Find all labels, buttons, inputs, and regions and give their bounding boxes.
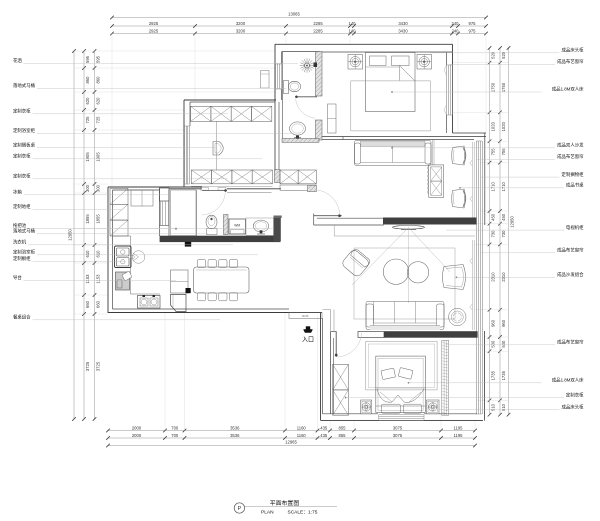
svg-text:520: 520 [491,51,496,59]
svg-text:餐桌组合: 餐桌组合 [13,314,31,321]
svg-text:1160: 1160 [297,433,307,438]
svg-text:240: 240 [452,28,460,33]
svg-text:落地式马桶: 落地式马桶 [13,82,36,89]
svg-text:595: 595 [85,55,90,63]
svg-text:定制浴室柜: 定制浴室柜 [13,127,36,134]
svg-text:435: 435 [320,433,328,438]
svg-text:2925: 2925 [149,21,159,26]
svg-text:140: 140 [349,28,357,33]
svg-text:975: 975 [469,21,477,26]
svg-text:1855: 1855 [85,214,90,224]
svg-text:2285: 2285 [313,28,323,33]
svg-text:3075: 3075 [393,425,403,430]
svg-text:成品布艺窗帘: 成品布艺窗帘 [557,339,584,346]
svg-text:660: 660 [96,300,101,308]
svg-text:1735: 1735 [501,370,506,380]
svg-text:成品沙发组合: 成品沙发组合 [557,271,584,278]
svg-text:3430: 3430 [398,28,408,33]
svg-text:620: 620 [85,97,90,105]
svg-text:JD-05: JD-05 [302,314,309,318]
svg-text:定制衣柜: 定制衣柜 [13,153,31,160]
svg-text:3200: 3200 [236,28,246,33]
svg-text:P: P [238,506,242,512]
svg-text:755: 755 [491,148,496,156]
svg-text:725: 725 [85,116,90,124]
svg-text:成品1.8M双人床: 成品1.8M双人床 [552,377,584,384]
svg-text:WM: WM [234,224,240,228]
svg-text:1855: 1855 [96,214,101,224]
svg-text:725: 725 [96,116,101,124]
svg-text:1710: 1710 [501,181,506,191]
svg-text:500: 500 [501,340,506,348]
svg-text:成品布艺窗帘: 成品布艺窗帘 [557,58,584,65]
svg-text:电视机柜: 电视机柜 [566,224,584,231]
svg-text:610: 610 [96,250,101,258]
svg-text:500: 500 [491,340,496,348]
svg-text:140: 140 [349,21,357,26]
svg-text:300: 300 [96,184,101,192]
svg-text:860: 860 [85,76,90,84]
svg-text:2310: 2310 [501,272,506,282]
svg-text:1195: 1195 [453,433,463,438]
svg-text:成品1.8M双人床: 成品1.8M双人床 [552,86,584,93]
svg-text:960: 960 [501,319,506,327]
svg-text:成品布艺窗帘: 成品布艺窗帘 [557,153,584,160]
svg-text:平面布置图: 平面布置图 [270,499,300,507]
svg-text:SCALE：1:75: SCALE：1:75 [288,509,318,515]
svg-text:2000: 2000 [132,425,142,430]
svg-text:960: 960 [491,319,496,327]
svg-text:1195: 1195 [453,425,463,430]
svg-text:610: 610 [85,250,90,258]
svg-text:1153: 1153 [85,274,90,284]
svg-text:700: 700 [171,425,179,430]
svg-text:860: 860 [96,76,101,84]
svg-text:花洒: 花洒 [13,57,22,64]
svg-text:660: 660 [85,300,90,308]
svg-text:12950: 12950 [68,229,73,241]
svg-text:1153: 1153 [96,274,101,284]
svg-text:595: 595 [96,55,101,63]
svg-text:855: 855 [339,425,347,430]
svg-text:1750: 1750 [491,82,496,92]
svg-text:定制搁板桌: 定制搁板桌 [13,141,36,148]
svg-text:1905: 1905 [85,152,90,162]
svg-text:12965: 12965 [285,440,297,445]
svg-text:2000: 2000 [132,433,142,438]
svg-text:300: 300 [85,184,90,192]
svg-text:冰箱: 冰箱 [13,189,22,196]
svg-text:定制衣柜: 定制衣柜 [566,391,584,398]
svg-text:定制衣柜: 定制衣柜 [13,173,31,180]
svg-text:435: 435 [320,425,328,430]
svg-text:3725: 3725 [85,361,90,371]
svg-text:620: 620 [96,97,101,105]
svg-text:入口: 入口 [302,337,314,344]
svg-text:510: 510 [501,403,506,411]
svg-text:3536: 3536 [230,433,240,438]
svg-text:1020: 1020 [491,121,496,131]
svg-text:700: 700 [171,433,179,438]
svg-text:定制橱柜: 定制橱柜 [13,255,31,262]
svg-text:定制地柜: 定制地柜 [13,203,31,210]
svg-text:PLAN: PLAN [261,509,274,515]
svg-text:510: 510 [491,403,496,411]
svg-text:3536: 3536 [230,425,240,430]
svg-text:755: 755 [501,148,506,156]
svg-text:520: 520 [501,51,506,59]
svg-text:成品布艺窗帘: 成品布艺窗帘 [557,247,584,254]
svg-text:730: 730 [501,230,506,238]
svg-text:1905: 1905 [96,152,101,162]
svg-text:3075: 3075 [393,433,403,438]
svg-text:1020: 1020 [501,121,506,131]
svg-text:1710: 1710 [491,181,496,191]
svg-text:3725: 3725 [96,361,101,371]
svg-text:定制浴室柜: 定制浴室柜 [13,249,36,256]
svg-text:落地式马桶: 落地式马桶 [13,228,36,235]
svg-text:3200: 3200 [236,21,246,26]
svg-text:成品书桌: 成品书桌 [566,182,584,189]
svg-text:12950: 12950 [510,216,515,228]
svg-text:730: 730 [491,230,496,238]
svg-text:240: 240 [452,21,460,26]
svg-text:成品床头柜: 成品床头柜 [562,47,585,54]
svg-text:3430: 3430 [398,21,408,26]
svg-text:450: 450 [501,213,506,221]
svg-text:成品床头柜: 成品床头柜 [562,403,585,410]
svg-text:1750: 1750 [501,82,506,92]
svg-text:洗衣机: 洗衣机 [13,239,27,246]
svg-text:成品双人沙发: 成品双人沙发 [557,142,584,149]
svg-text:2285: 2285 [313,21,323,26]
svg-text:导台: 导台 [13,274,22,281]
svg-text:855: 855 [339,433,347,438]
svg-text:975: 975 [469,28,477,33]
svg-text:定制衣柜: 定制衣柜 [13,108,31,115]
svg-text:定制搁物柜: 定制搁物柜 [562,171,585,178]
svg-text:1735: 1735 [491,370,496,380]
svg-text:13065: 13065 [288,12,300,17]
svg-text:450: 450 [491,213,496,221]
svg-text:2925: 2925 [149,28,159,33]
svg-text:1160: 1160 [297,425,307,430]
svg-text:2310: 2310 [491,272,496,282]
